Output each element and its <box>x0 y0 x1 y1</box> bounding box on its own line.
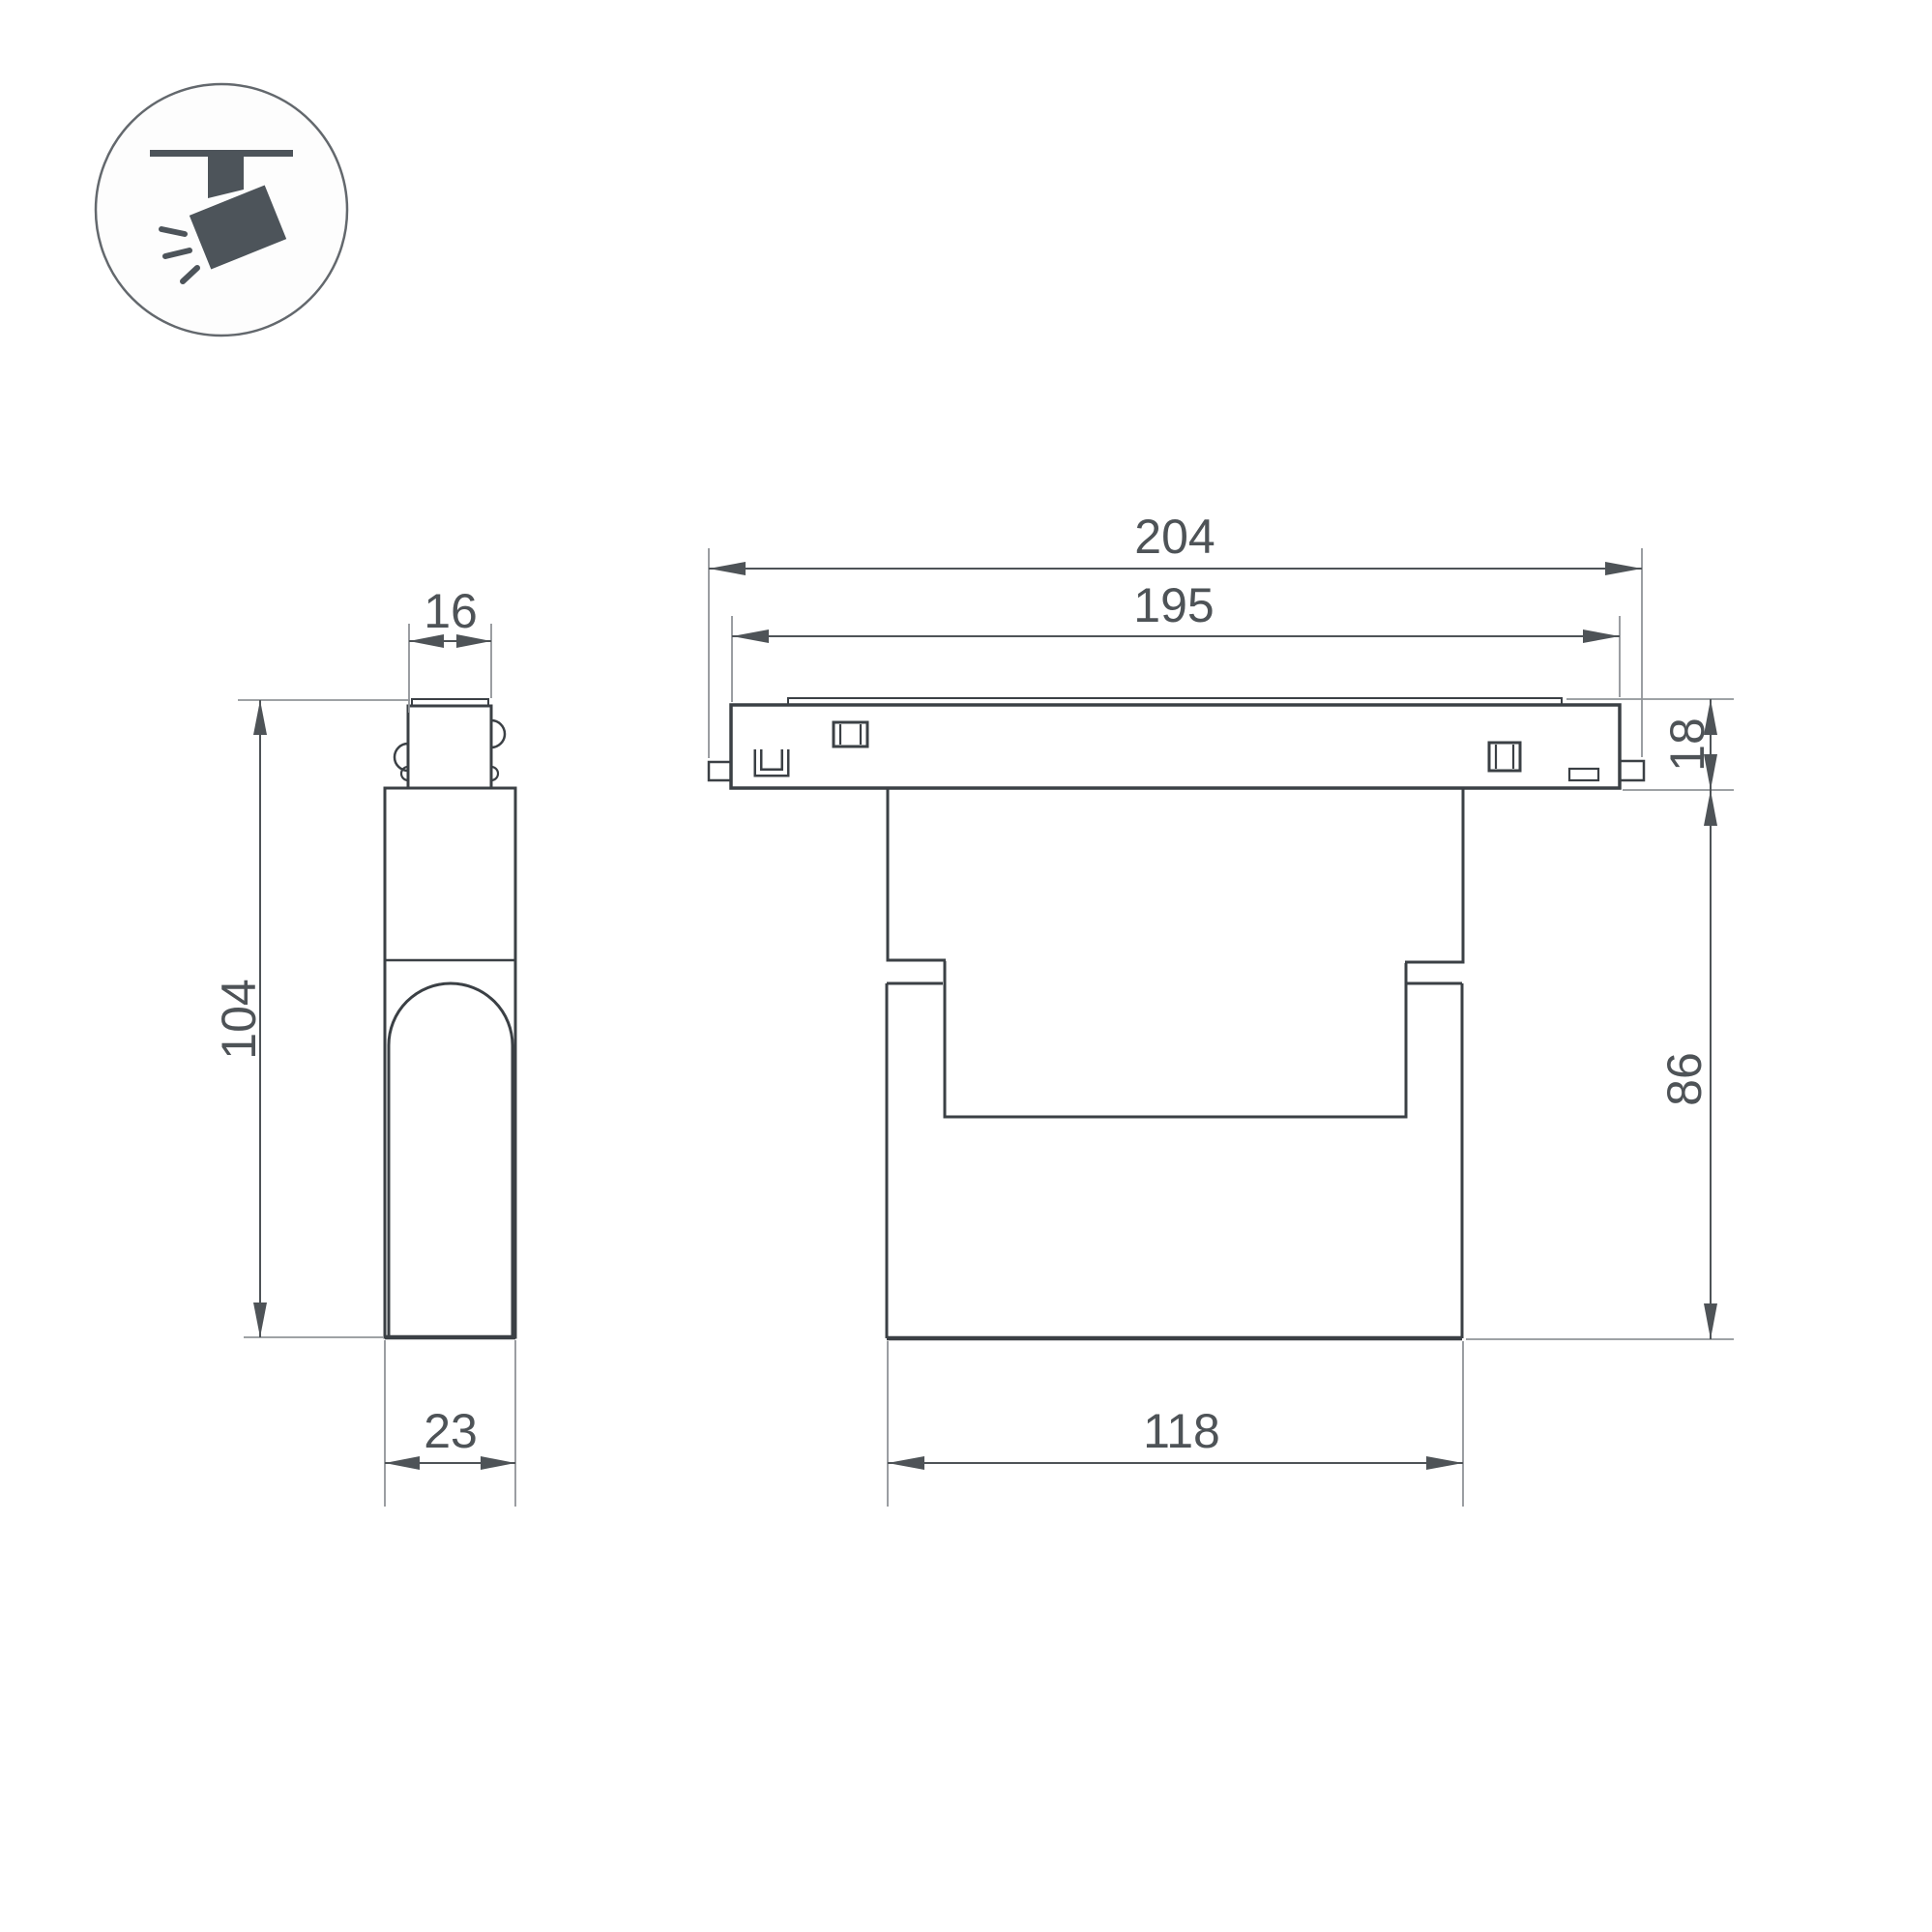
dim-label-195: 195 <box>1133 578 1214 632</box>
dim-label-16: 16 <box>424 584 478 638</box>
dim-track-height: 18 <box>1566 699 1734 790</box>
front-contact-tab-right <box>1620 761 1644 780</box>
dim-body-height: 86 <box>1466 790 1734 1339</box>
front-body-right-edge <box>1405 788 1463 962</box>
arrowhead <box>1583 629 1620 643</box>
front-latch-right <box>1489 743 1520 771</box>
front-latch-left <box>834 722 867 746</box>
arrowhead <box>1704 790 1717 826</box>
side-clip-right <box>491 720 505 747</box>
front-contact-tab-left <box>709 762 731 780</box>
dim-front-overall-width: 204 <box>709 510 1642 758</box>
dimension-drawing-page: 16 104 23 204 <box>0 0 1932 1932</box>
technical-drawing: 16 104 23 204 <box>0 0 1932 1932</box>
arrowhead <box>1426 1456 1463 1470</box>
arrowhead <box>1704 1303 1717 1339</box>
dim-front-housing-width: 195 <box>732 578 1620 702</box>
dim-body-width: 118 <box>888 1341 1463 1507</box>
arrowhead <box>732 629 769 643</box>
front-hinge-recess <box>945 961 1406 1117</box>
dim-side-height: 104 <box>212 700 410 1337</box>
track-spotlight-icon <box>96 84 347 336</box>
front-u-bracket <box>758 749 785 773</box>
arrowhead <box>253 1303 267 1337</box>
arrowhead <box>253 700 267 735</box>
front-body-left-edge <box>888 788 946 960</box>
front-view <box>709 698 1644 1338</box>
dim-label-23: 23 <box>424 1404 478 1458</box>
arrowhead <box>481 1456 515 1470</box>
side-body <box>385 788 515 1337</box>
dim-label-86: 86 <box>1657 1052 1712 1106</box>
dim-label-204: 204 <box>1134 510 1215 564</box>
front-slot <box>1569 769 1598 780</box>
arrowhead <box>1605 562 1642 575</box>
dim-side-depth: 23 <box>385 1340 515 1507</box>
arrowhead <box>709 562 746 575</box>
dim-label-104: 104 <box>212 979 266 1059</box>
arrowhead <box>888 1456 924 1470</box>
side-lens-arch <box>389 983 512 1337</box>
dim-side-top-width: 16 <box>409 584 491 713</box>
icon-track-rail <box>150 150 293 157</box>
side-track-connector <box>408 706 491 788</box>
side-view <box>385 699 515 1337</box>
arrowhead <box>385 1456 420 1470</box>
dim-label-118: 118 <box>1143 1404 1220 1458</box>
dim-label-18: 18 <box>1660 717 1714 772</box>
